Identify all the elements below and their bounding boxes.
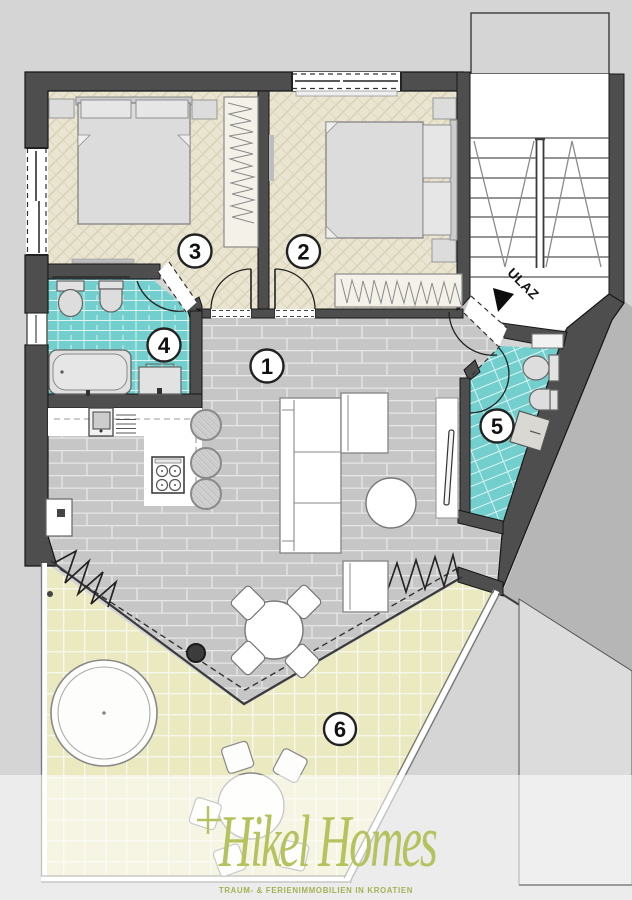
svg-text:TRAUM- & FERIENIMMOBILIEN IN K: TRAUM- & FERIENIMMOBILIEN IN KROATIEN <box>219 886 413 895</box>
svg-text:5: 5 <box>491 414 503 439</box>
svg-text:2: 2 <box>297 240 309 265</box>
svg-text:4: 4 <box>158 333 171 358</box>
svg-text:Hikel Homes: Hikel Homes <box>218 801 437 883</box>
svg-text:3: 3 <box>189 239 201 264</box>
svg-text:6: 6 <box>334 717 346 742</box>
svg-text:1: 1 <box>261 354 273 379</box>
